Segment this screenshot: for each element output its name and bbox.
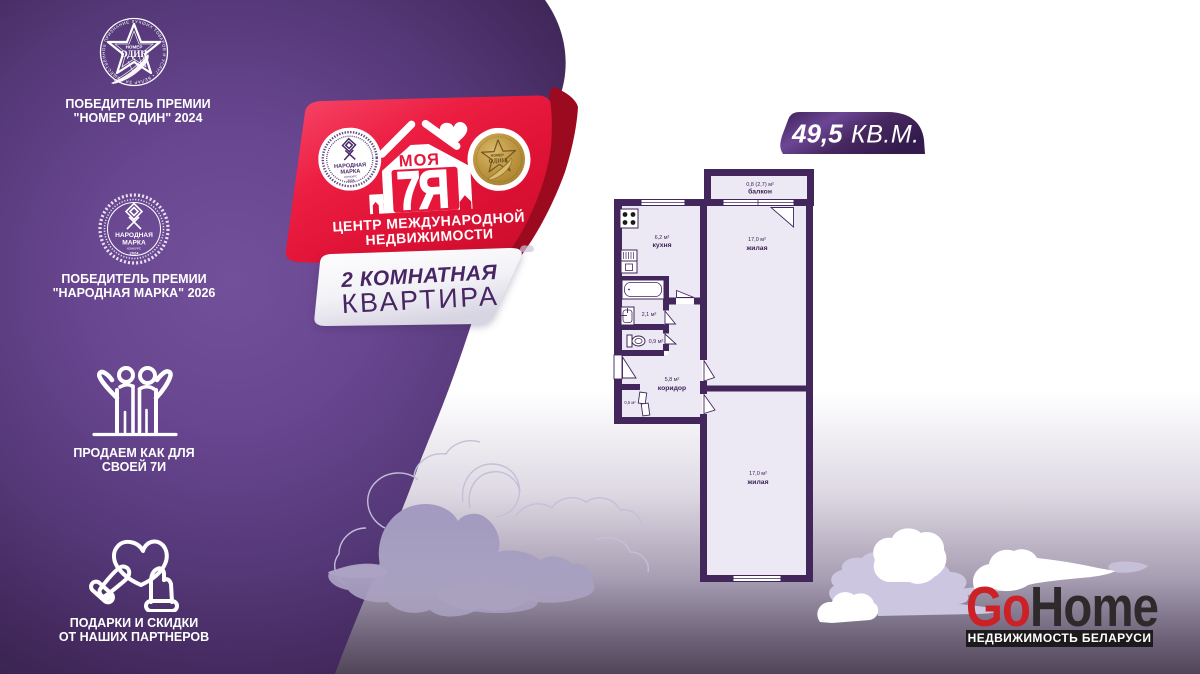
svg-text:жилая: жилая <box>746 479 768 486</box>
svg-text:НАРОДНАЯ: НАРОДНАЯ <box>115 232 153 239</box>
svg-text:0,9 м²: 0,9 м² <box>649 339 664 345</box>
svg-text:жилая: жилая <box>745 245 767 252</box>
svg-text:балкон: балкон <box>748 188 772 196</box>
svg-text:кухня: кухня <box>652 242 671 249</box>
svg-text:МАРКА: МАРКА <box>122 240 146 247</box>
svg-text:17,0 м²: 17,0 м² <box>749 471 767 477</box>
svg-text:0,5 м²: 0,5 м² <box>624 400 636 405</box>
svg-text:коридор: коридор <box>658 385 686 392</box>
svg-text:0,8 (2,7) м²: 0,8 (2,7) м² <box>746 182 774 188</box>
svg-text:2,1 м²: 2,1 м² <box>642 312 657 318</box>
svg-text:6,2 м²: 6,2 м² <box>655 235 670 241</box>
svg-text:2024: 2024 <box>130 251 140 256</box>
svg-text:17,0 м²: 17,0 м² <box>748 237 766 243</box>
svg-text:5,8 м²: 5,8 м² <box>665 377 680 383</box>
svg-text:49,5: 49,5 <box>791 119 843 149</box>
svg-text:КВ.М.: КВ.М. <box>851 121 920 149</box>
